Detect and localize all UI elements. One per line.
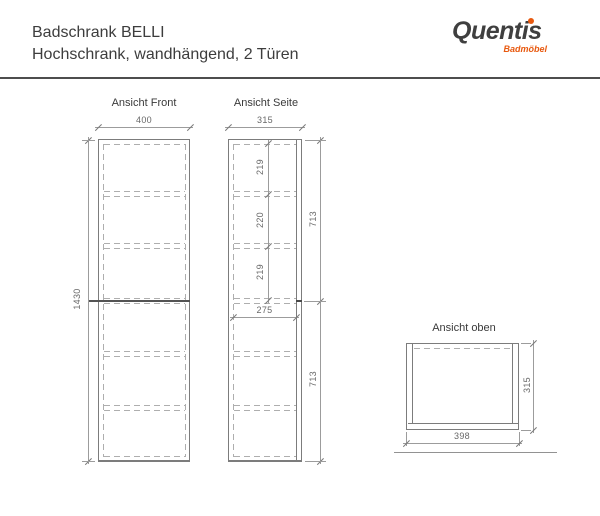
brand-subtitle: Badmöbel — [452, 44, 547, 54]
door-edge-dashed-line — [104, 456, 185, 457]
side-panel-line — [512, 344, 513, 423]
extension-line — [305, 140, 326, 141]
technical-drawing-page: Badschrank BELLI Hochschrank, wandhängen… — [0, 0, 600, 516]
shelf-line — [104, 303, 185, 304]
extension-line — [304, 301, 326, 302]
door-edge-dashed-line — [104, 144, 185, 145]
shelf-line — [234, 351, 296, 352]
door-split-line — [296, 300, 302, 302]
front-view-label: Ansicht Front — [97, 97, 191, 109]
wall-line — [394, 452, 557, 453]
dim-line — [230, 317, 299, 318]
dim-value: 400 — [95, 115, 193, 125]
shelf-line — [104, 298, 185, 299]
shelf-line — [104, 243, 185, 244]
shelf-line — [234, 410, 296, 411]
dim-value: 713 — [308, 364, 318, 394]
shelf-line — [234, 243, 296, 244]
shelf-line — [104, 410, 185, 411]
title-block: Badschrank BELLI Hochschrank, wandhängen… — [32, 22, 299, 66]
dim-value: 275 — [233, 305, 296, 315]
dim-value: 219 — [255, 257, 265, 287]
dim-value: 398 — [412, 431, 512, 441]
header-divider — [0, 77, 600, 79]
side-cabinet-outline — [228, 139, 302, 462]
back-panel-line — [408, 423, 518, 424]
dim-line — [88, 137, 89, 464]
shelf-line — [234, 405, 296, 406]
dim-value: 315 — [522, 370, 532, 400]
shelf-line — [104, 191, 185, 192]
dim-line — [533, 340, 534, 433]
shelf-line — [104, 248, 185, 249]
dim-line — [225, 127, 305, 128]
dim-line — [95, 127, 193, 128]
dim-line — [268, 140, 269, 303]
shelf-line — [104, 405, 185, 406]
door-edge-dashed-line — [234, 456, 296, 457]
door-split-line — [89, 300, 190, 302]
dim-value: 315 — [225, 115, 305, 125]
brand-logo: Quentis — [452, 17, 548, 46]
shelf-line — [104, 351, 185, 352]
extension-line — [305, 461, 326, 462]
brand-i-dot-icon — [528, 18, 534, 24]
page-title-line1: Badschrank BELLI — [32, 22, 299, 44]
shelf-line — [104, 356, 185, 357]
extension-line — [82, 461, 95, 462]
extension-line — [521, 343, 531, 344]
page-title-line2: Hochschrank, wandhängend, 2 Türen — [32, 44, 299, 66]
shelf-line — [234, 191, 296, 192]
extension-line — [521, 430, 531, 431]
shelf-line — [234, 298, 296, 299]
shelf-line — [234, 356, 296, 357]
dim-value: 713 — [308, 204, 318, 234]
dim-value: 219 — [255, 152, 265, 182]
dim-line — [403, 443, 522, 444]
side-view-label: Ansicht Seite — [219, 97, 313, 109]
shelf-line — [104, 196, 185, 197]
door-front-dashed-line — [414, 348, 511, 349]
top-cabinet-outline — [406, 343, 519, 430]
side-panel-line — [412, 344, 413, 423]
top-view-label: Ansicht oben — [416, 322, 512, 334]
dim-value: 220 — [255, 205, 265, 235]
extension-line — [82, 140, 95, 141]
dim-value: 1430 — [72, 279, 82, 319]
